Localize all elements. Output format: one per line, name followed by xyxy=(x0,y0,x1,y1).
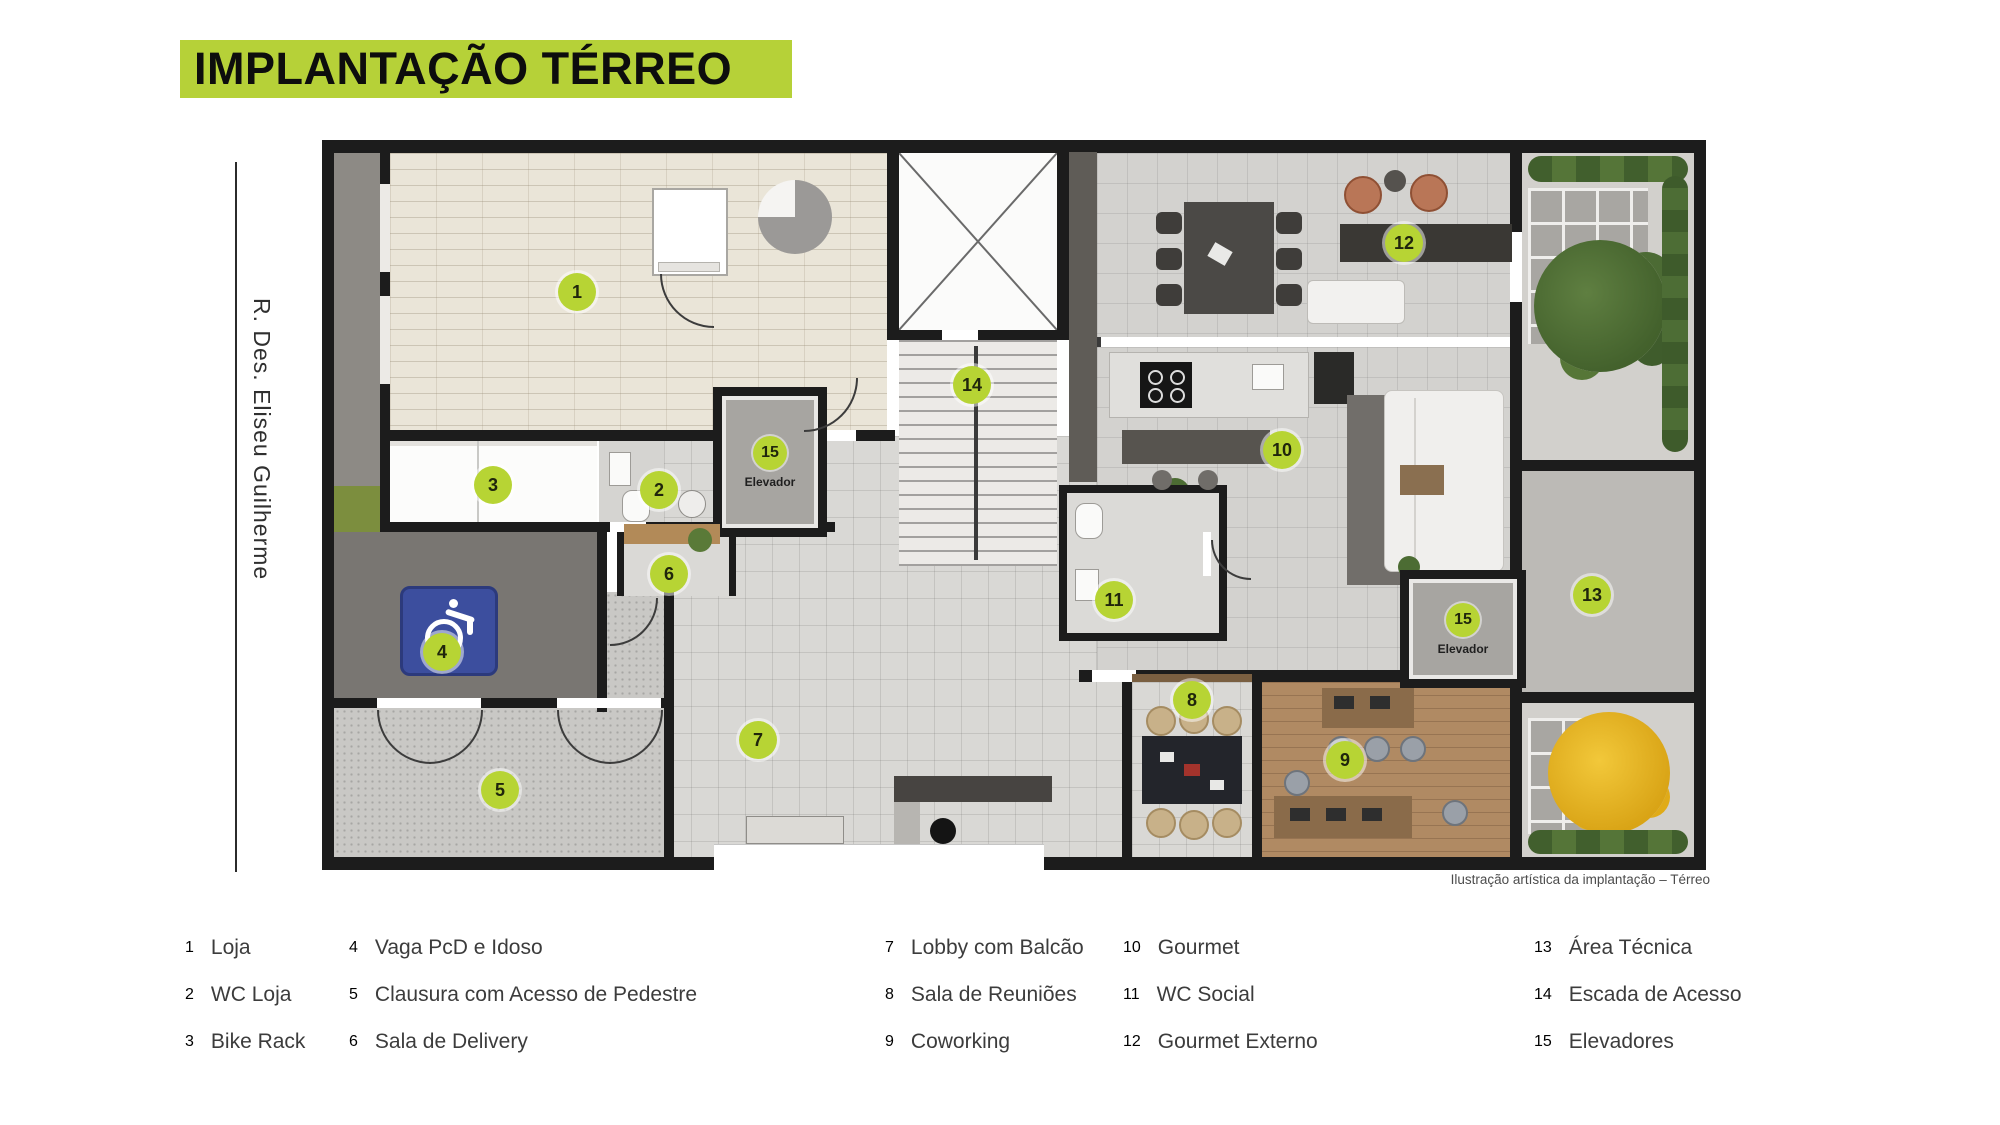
cowork-chair-2 xyxy=(1364,736,1390,762)
legend-item-8: 8 Sala de Reuniões xyxy=(885,983,1084,1007)
legend-badge-3: 3 xyxy=(185,1033,194,1051)
ext-chair-2 xyxy=(1156,248,1182,270)
monitor-1 xyxy=(1334,696,1354,709)
legend-label-14: Escada de Acesso xyxy=(1569,983,1742,1007)
plan-marker-15a: 15 xyxy=(753,436,787,470)
meeting-chair-6 xyxy=(1212,808,1242,838)
wall-meeting-left xyxy=(1122,682,1132,857)
kitchen-island xyxy=(1122,430,1270,464)
burner-2 xyxy=(1170,370,1185,385)
plan-marker-10: 10 xyxy=(1263,431,1301,469)
wall-frame-right xyxy=(1694,140,1706,870)
burner-1 xyxy=(1148,370,1163,385)
cowork-chair-5 xyxy=(1442,800,1468,826)
legend-item-10: 10 Gourmet xyxy=(1123,936,1318,960)
glass-divider xyxy=(1097,337,1518,347)
shopfront-window-2 xyxy=(380,296,390,384)
clausura-gate-gap-2 xyxy=(557,698,661,708)
legend-column-1: 1 Loja 2 WC Loja 3 Bike Rack xyxy=(185,936,305,1054)
cowork-chair-4 xyxy=(1284,770,1310,796)
lounge-table xyxy=(1384,170,1406,192)
grass-patch xyxy=(334,486,380,532)
wall-tech-bottom xyxy=(1510,692,1694,703)
gourmet-door-gap xyxy=(1092,670,1136,682)
plan-marker-13: 13 xyxy=(1573,576,1611,614)
legend-item-14: 14 Escada de Acesso xyxy=(1534,983,1742,1007)
legend-badge-7: 7 xyxy=(885,939,894,957)
elevator-bottom-label: Elevador xyxy=(1438,642,1489,656)
title-bar: IMPLANTAÇÃO TÉRREO xyxy=(180,40,792,98)
legend-badge-11: 11 xyxy=(1123,986,1140,1004)
plan-marker-4: 4 xyxy=(423,633,461,671)
meeting-chair-5 xyxy=(1179,810,1209,840)
cooktop xyxy=(1140,362,1192,408)
legend-column-2: 4 Vaga PcD e Idoso 5 Clausura com Acesso… xyxy=(349,936,697,1054)
legend-label-12: Gourmet Externo xyxy=(1158,1030,1318,1054)
meeting-chair-3 xyxy=(1212,706,1242,736)
wall-shaft-right xyxy=(1057,140,1069,340)
legend-badge-2: 2 xyxy=(185,986,194,1004)
legend-badge-9: 9 xyxy=(885,1033,894,1051)
wall-frame-top xyxy=(322,140,1706,153)
legend-label-3: Bike Rack xyxy=(211,1030,306,1054)
plan-marker-5: 5 xyxy=(481,771,519,809)
legend-label-2: WC Loja xyxy=(211,983,292,1007)
floor-plan: 15 Elevador xyxy=(322,140,1706,870)
legend-label-13: Área Técnica xyxy=(1569,936,1692,960)
entrance-threshold xyxy=(714,844,1044,871)
sidewalk-strip xyxy=(334,152,380,532)
wc-social-door-gap xyxy=(1203,532,1211,576)
street-edge-line xyxy=(235,162,237,872)
legend-label-10: Gourmet xyxy=(1158,936,1240,960)
legend-label-5: Clausura com Acesso de Pedestre xyxy=(375,983,697,1007)
shopfront-window-1 xyxy=(380,184,390,272)
meeting-chair-1 xyxy=(1146,706,1176,736)
stool-2 xyxy=(1198,470,1218,490)
ext-sofa xyxy=(1307,280,1405,324)
shaft-door-gap xyxy=(942,330,978,340)
shaft-x-icon xyxy=(899,153,1057,330)
legend-column-4: 10 Gourmet 11 WC Social 12 Gourmet Exter… xyxy=(1123,936,1318,1054)
legend-item-2: 2 WC Loja xyxy=(185,983,305,1007)
plan-marker-1: 1 xyxy=(558,273,596,311)
street-label: R. Des. Eliseu Guilherme xyxy=(248,298,275,580)
wall-shaft-bottom xyxy=(887,330,1069,340)
legend-label-4: Vaga PcD e Idoso xyxy=(375,936,543,960)
monitor-5 xyxy=(1362,808,1382,821)
legend-badge-14: 14 xyxy=(1534,986,1552,1004)
monitor-2 xyxy=(1370,696,1390,709)
plan-marker-7: 7 xyxy=(739,721,777,759)
wall-tech-top xyxy=(1510,460,1694,471)
legend-column-3: 7 Lobby com Balcão 8 Sala de Reuniões 9 … xyxy=(885,936,1084,1054)
page-title: IMPLANTAÇÃO TÉRREO xyxy=(180,43,732,95)
legend-item-7: 7 Lobby com Balcão xyxy=(885,936,1084,960)
reception-chair xyxy=(930,818,956,844)
meeting-box-red xyxy=(1184,764,1200,776)
legend-label-8: Sala de Reuniões xyxy=(911,983,1077,1007)
reception-return xyxy=(894,802,920,846)
legend-badge-6: 6 xyxy=(349,1033,358,1051)
page: IMPLANTAÇÃO TÉRREO R. Des. Eliseu Guilhe… xyxy=(0,0,2000,1125)
meeting-paper-2 xyxy=(1210,780,1224,790)
monitor-3 xyxy=(1290,808,1310,821)
bushes-right-top xyxy=(1662,176,1688,452)
legend-badge-12: 12 xyxy=(1123,1033,1141,1051)
legend-item-9: 9 Coworking xyxy=(885,1030,1084,1054)
wc-social-toilet xyxy=(1075,503,1103,539)
plan-marker-14: 14 xyxy=(953,366,991,404)
meeting-paper-1 xyxy=(1160,752,1174,762)
wc-loja-sink xyxy=(609,452,631,486)
plan-marker-6: 6 xyxy=(650,555,688,593)
legend-badge-1: 1 xyxy=(185,939,194,957)
legend-item-11: 11 WC Social xyxy=(1123,983,1318,1007)
stool-1 xyxy=(1152,470,1172,490)
plan-marker-3: 3 xyxy=(474,466,512,504)
legend-badge-13: 13 xyxy=(1534,939,1552,957)
plan-marker-2: 2 xyxy=(640,471,678,509)
room-wc-social xyxy=(1059,485,1227,641)
monitor-4 xyxy=(1326,808,1346,821)
yellow-tree xyxy=(1548,712,1670,834)
lounge-chair-1 xyxy=(1344,176,1382,214)
ext-chair-4 xyxy=(1276,212,1302,234)
legend-label-1: Loja xyxy=(211,936,251,960)
legend-item-6: 6 Sala de Delivery xyxy=(349,1030,697,1054)
lounge-chair-2 xyxy=(1410,174,1448,212)
pcd-head-icon xyxy=(449,599,458,608)
legend-label-15: Elevadores xyxy=(1569,1030,1674,1054)
pcd-leg-icon xyxy=(467,617,473,635)
legend-badge-15: 15 xyxy=(1534,1033,1552,1051)
legend-label-7: Lobby com Balcão xyxy=(911,936,1084,960)
legend-item-5: 5 Clausura com Acesso de Pedestre xyxy=(349,983,697,1007)
wall-meeting-right xyxy=(1252,682,1262,857)
plan-marker-15b: 15 xyxy=(1446,603,1480,637)
hedge-bottom xyxy=(1528,830,1688,854)
shaft-void xyxy=(899,153,1057,330)
plan-marker-12: 12 xyxy=(1385,224,1423,262)
reception-counter xyxy=(894,776,1052,802)
legend-item-1: 1 Loja xyxy=(185,936,305,960)
loja-shelf xyxy=(658,262,720,272)
wall-shaft-left xyxy=(887,140,899,340)
wall-parking-right xyxy=(597,522,607,712)
plan-marker-11: 11 xyxy=(1095,581,1133,619)
green-tree xyxy=(1534,240,1666,372)
legend-label-9: Coworking xyxy=(911,1030,1010,1054)
legend-item-13: 13 Área Técnica xyxy=(1534,936,1742,960)
ext-chair-1 xyxy=(1156,212,1182,234)
legend-badge-5: 5 xyxy=(349,986,358,1004)
elevator-top-label: Elevador xyxy=(745,475,796,489)
burner-4 xyxy=(1170,388,1185,403)
ext-chair-3 xyxy=(1156,284,1182,306)
legend-badge-4: 4 xyxy=(349,939,358,957)
ext-bench-bar xyxy=(1340,224,1512,262)
coffee-table xyxy=(1400,465,1444,495)
lobby-bench xyxy=(746,816,844,844)
area-tecnica-floor xyxy=(1522,471,1694,692)
legend-item-3: 3 Bike Rack xyxy=(185,1030,305,1054)
legend-label-6: Sala de Delivery xyxy=(375,1030,528,1054)
plan-caption: Ilustração artística da implantação – Té… xyxy=(1410,872,1710,887)
wall-clausura-right xyxy=(664,592,674,858)
legend-item-15: 15 Elevadores xyxy=(1534,1030,1742,1054)
legend-badge-10: 10 xyxy=(1123,939,1141,957)
legend-badge-8: 8 xyxy=(885,986,894,1004)
legend-label-11: WC Social xyxy=(1157,983,1255,1007)
wall-dark-strip xyxy=(1069,152,1097,482)
meeting-chair-4 xyxy=(1146,808,1176,838)
wall-frame-left xyxy=(322,140,334,870)
legend-item-12: 12 Gourmet Externo xyxy=(1123,1030,1318,1054)
hedge-top xyxy=(1528,156,1688,182)
cowork-chair-3 xyxy=(1400,736,1426,762)
legend-column-5: 13 Área Técnica 14 Escada de Acesso 15 E… xyxy=(1534,936,1742,1054)
burner-3 xyxy=(1148,388,1163,403)
elevator-bottom: 15 Elevador xyxy=(1400,570,1526,688)
wc-loja-shower xyxy=(678,490,706,518)
ext-chair-6 xyxy=(1276,284,1302,306)
clausura-gate-gap-1 xyxy=(377,698,481,708)
delivery-plant xyxy=(688,528,712,552)
plan-marker-9: 9 xyxy=(1326,741,1364,779)
ext-chair-5 xyxy=(1276,248,1302,270)
kitchen-sink xyxy=(1252,364,1284,390)
spiral-stair xyxy=(758,180,832,254)
legend-item-4: 4 Vaga PcD e Idoso xyxy=(349,936,697,960)
plan-marker-8: 8 xyxy=(1173,681,1211,719)
